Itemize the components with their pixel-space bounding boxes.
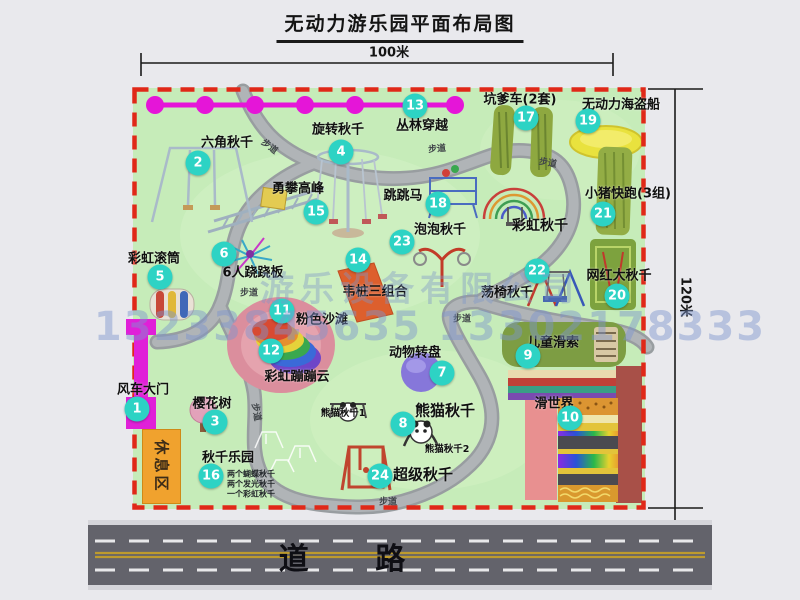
dimension-horizontal-label: 100米: [369, 42, 409, 61]
road-label: 道 路: [279, 534, 433, 578]
piggy-run-zone: [595, 146, 632, 235]
watermark-phone: 13233845635 13302178333: [94, 304, 766, 350]
slide-world-zone: [508, 366, 642, 503]
animal-turntable-zone: [401, 352, 441, 392]
big-swing-zone: [590, 239, 636, 310]
rest-area: 休息区: [142, 429, 181, 504]
screenshot-stage: 无动力游乐园平面布局图 100米 120米 休息区 游乐设备有限公司 13233…: [0, 0, 800, 600]
rest-area-label: 休息区: [151, 439, 172, 493]
page-title: 无动力游乐园平面布局图: [276, 9, 523, 43]
